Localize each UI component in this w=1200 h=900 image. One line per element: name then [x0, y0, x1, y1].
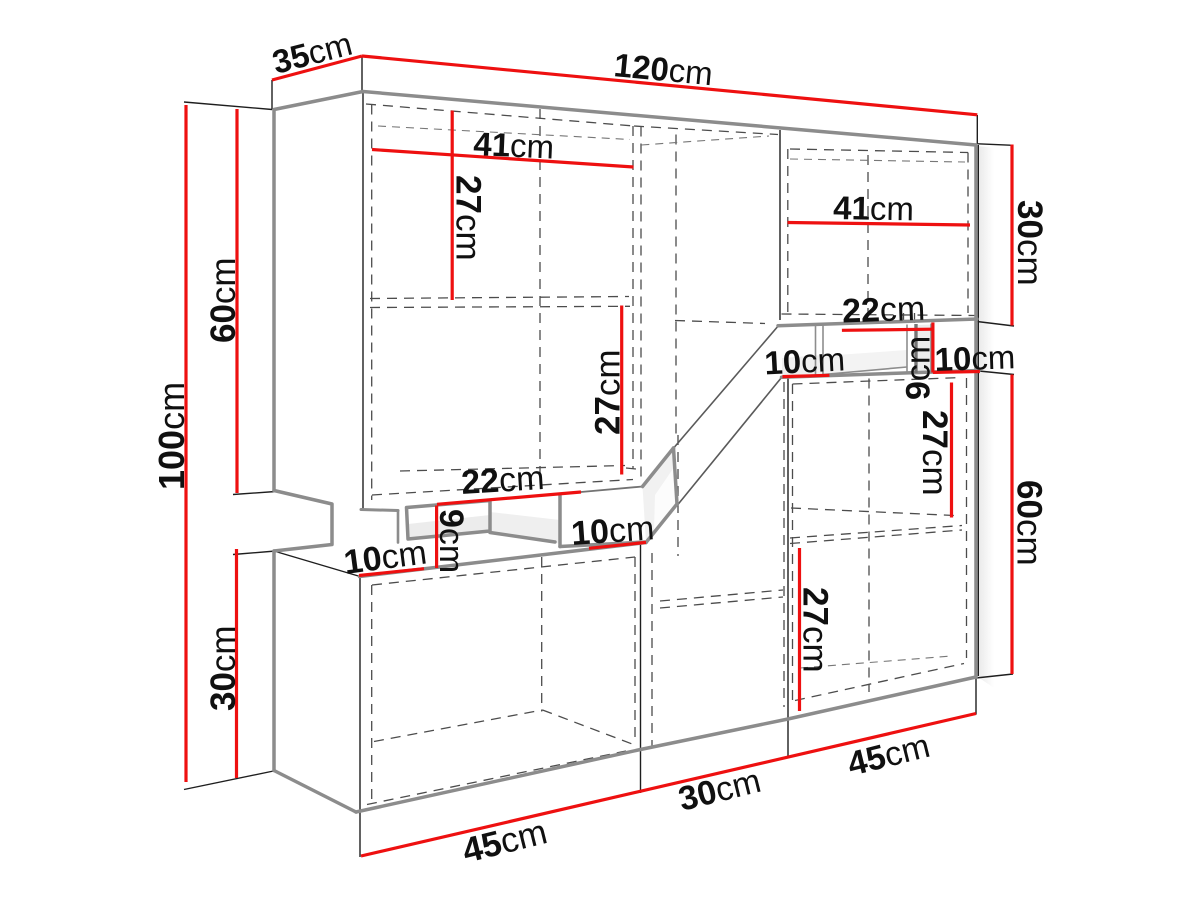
svg-text:27cm: 27cm: [449, 175, 488, 261]
svg-text:27cm: 27cm: [796, 587, 835, 673]
svg-text:10cm: 10cm: [934, 338, 1016, 378]
svg-text:60cm: 60cm: [1010, 480, 1049, 566]
svg-text:41cm: 41cm: [473, 125, 555, 165]
svg-text:22cm: 22cm: [841, 290, 925, 331]
svg-text:41cm: 41cm: [833, 189, 914, 227]
svg-text:9cm: 9cm: [432, 509, 470, 573]
svg-text:27cm: 27cm: [589, 349, 628, 435]
svg-text:9cm: 9cm: [900, 336, 938, 400]
svg-text:22cm: 22cm: [460, 459, 545, 502]
svg-text:60cm: 60cm: [204, 257, 243, 343]
svg-text:27cm: 27cm: [915, 410, 954, 496]
svg-text:100cm: 100cm: [151, 382, 192, 490]
svg-text:30cm: 30cm: [204, 625, 243, 711]
svg-text:10cm: 10cm: [570, 509, 656, 553]
svg-text:30cm: 30cm: [1010, 200, 1049, 286]
svg-text:10cm: 10cm: [763, 340, 846, 381]
